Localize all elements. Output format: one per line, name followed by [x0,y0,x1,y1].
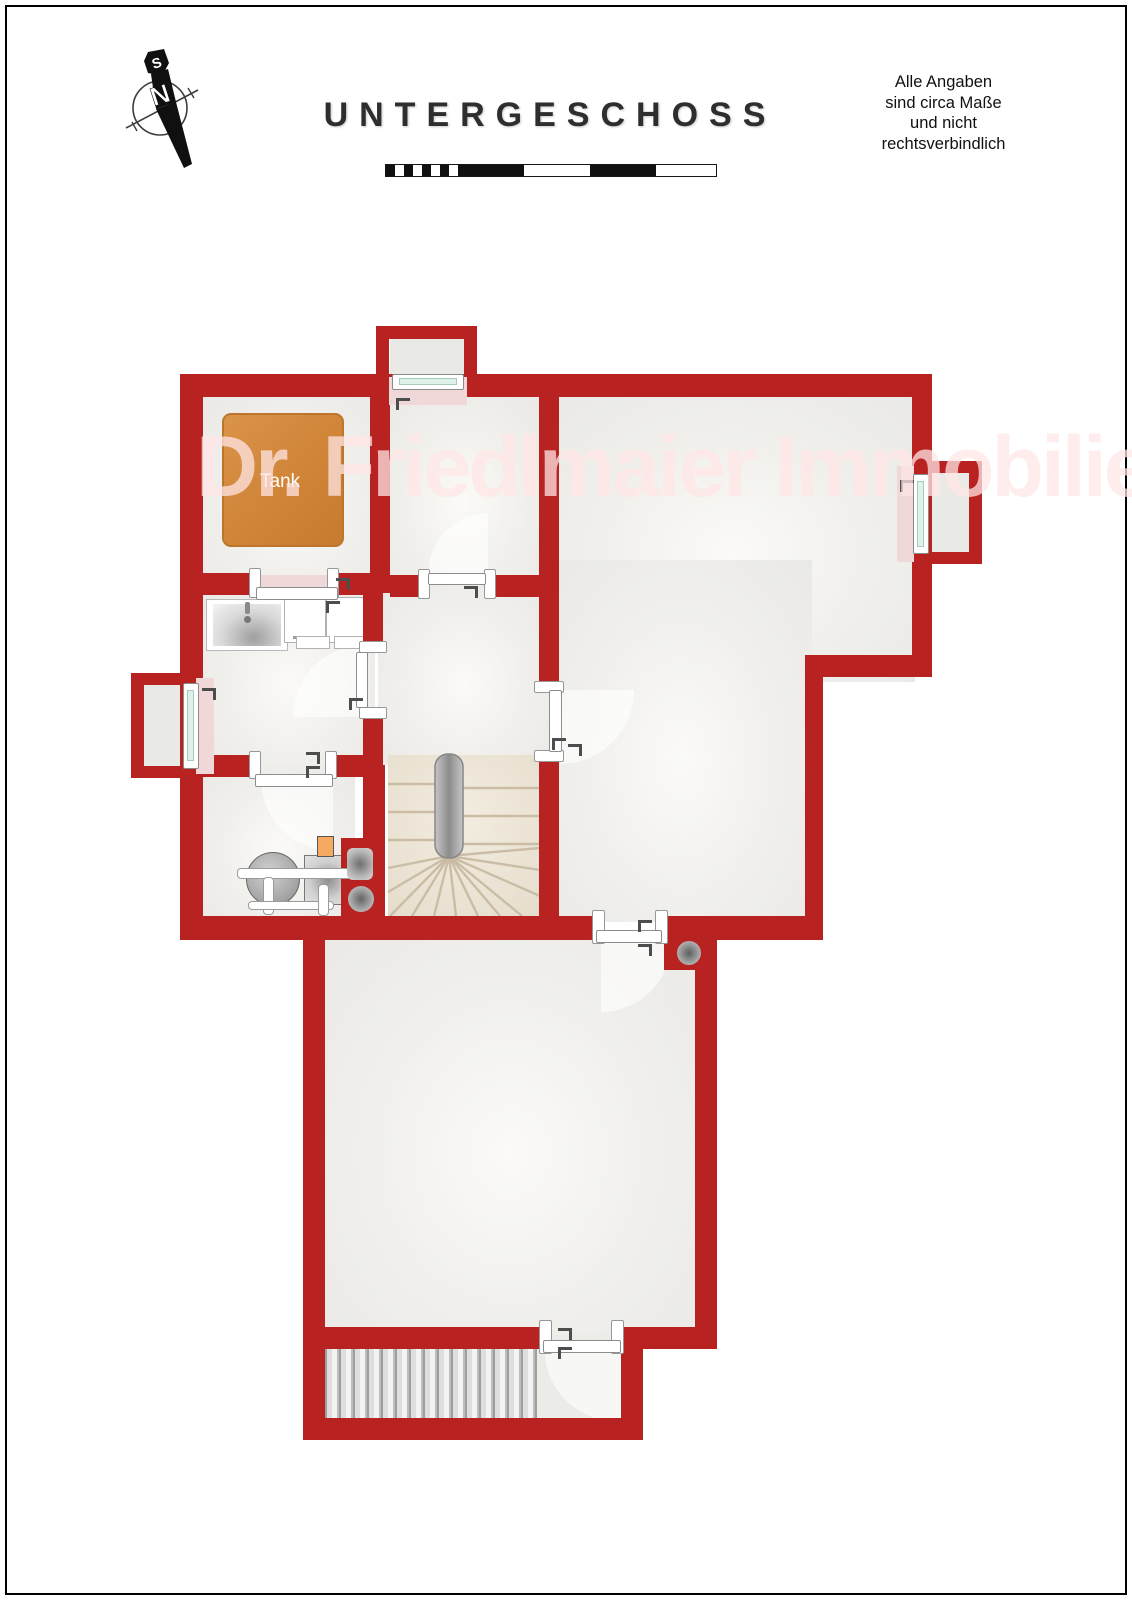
wall-lower-bottom [303,1327,545,1349]
wall-hall-large [539,757,559,940]
wall-lightwell-top [376,326,389,376]
wall-step-horizontal [805,655,932,677]
wall-washroom-hall [363,593,383,647]
wall-lightwell-top [376,326,477,339]
wall-lower-right [695,938,717,1349]
pipe [318,884,329,916]
disclaimer-line: sind circa Maße [856,93,1031,114]
wall-lightwell-left [131,766,181,778]
disclaimer-note: Alle Angaben sind circa Maße und nicht r… [856,72,1031,155]
chimney-pipe [317,836,334,857]
wall-top [180,374,932,397]
light-well-left [144,685,182,767]
disclaimer-line: Alle Angaben [856,72,1031,93]
wall-lightwell-right [969,461,982,564]
wall-left [180,374,203,940]
wall-hall-large [539,397,559,687]
wall-tank-washroom [203,573,255,595]
wall-lightwell-left [131,673,144,778]
light-well-top [390,338,466,378]
stair-newel-post [435,754,463,858]
wall-lower-bottom [621,1327,717,1349]
page-title: UNTERGESCHOSS [270,96,830,135]
pipe [237,868,353,879]
wall-right-mid [805,655,823,940]
wall-bottom-right [658,916,823,940]
drain-icon [244,616,251,623]
disclaimer-line: rechtsverbindlich [856,134,1031,155]
drawer-front [296,636,330,649]
sink [206,599,288,651]
light-well-right [930,473,972,553]
wall-lightwell-top [464,326,477,376]
room-hall [378,585,550,765]
floorplan-page: S N UNTERGESCHOSS Alle Angaben sind circ… [0,0,1132,1600]
wall-middle-hall [490,575,539,597]
oil-tank: Tank [222,413,344,547]
disclaimer-line: und nicht [856,113,1031,134]
wall-bottom-left [180,916,601,940]
wall-lower-left [303,930,325,1440]
faucet-icon [245,602,250,614]
interior-winder-stairs [378,748,550,920]
floor-drain [348,886,374,912]
wall-lightwell-right [930,552,982,564]
wall-stairwell-bottom [303,1418,643,1440]
wall-tank-middle [370,397,390,593]
tank-label: Tank [260,471,300,493]
chimney-flue [677,941,701,965]
north-arrow-compass: S N [118,46,204,178]
scale-bar [385,164,717,177]
exterior-stairs [325,1349,537,1418]
wall-shaft [347,848,373,880]
